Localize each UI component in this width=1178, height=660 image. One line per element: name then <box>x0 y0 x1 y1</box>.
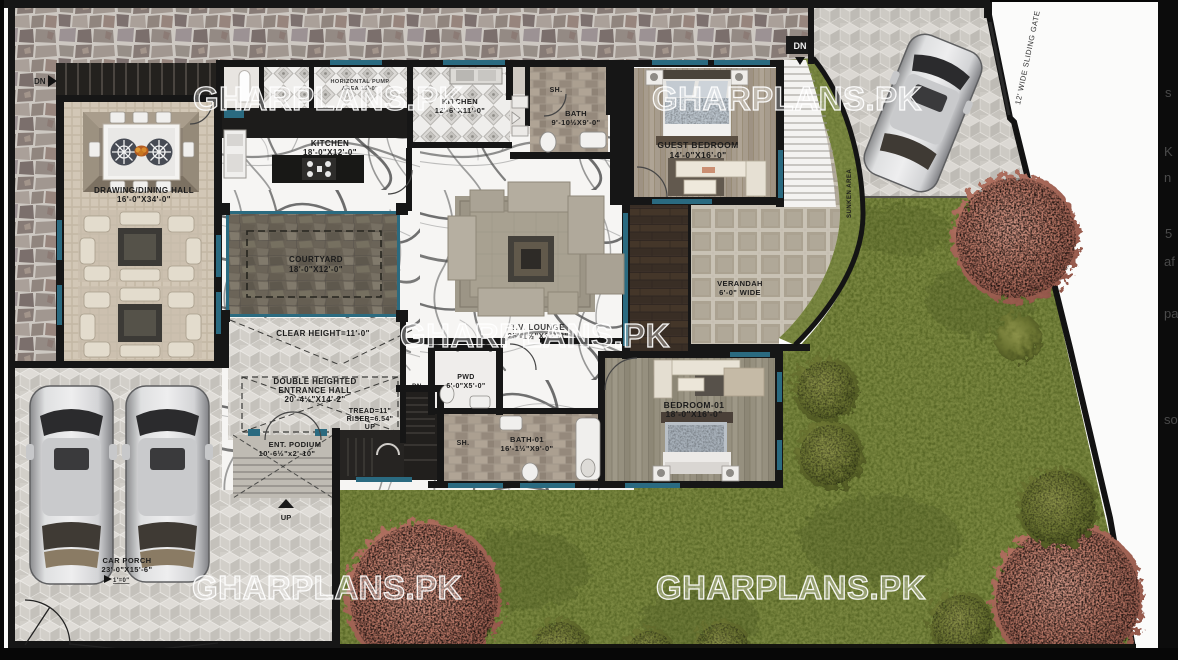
svg-text:18'-0"X16'-0": 18'-0"X16'-0" <box>666 409 723 419</box>
svg-text:PWD: PWD <box>457 374 475 381</box>
svg-text:GHARPLANS.PK: GHARPLANS.PK <box>656 569 926 606</box>
svg-text:RISER=6.54": RISER=6.54" <box>347 416 394 423</box>
svg-text:DN: DN <box>794 41 807 51</box>
svg-text:s: s <box>1165 85 1172 100</box>
svg-text:COURTYARD: COURTYARD <box>289 255 343 264</box>
svg-text:GHARPLANS.PK: GHARPLANS.PK <box>652 80 922 117</box>
svg-text:DN: DN <box>34 77 46 86</box>
svg-text:16'-1½"X9'-0": 16'-1½"X9'-0" <box>501 444 554 453</box>
svg-text:CAR PORCH: CAR PORCH <box>102 556 151 565</box>
svg-text:14'-0"X16'-0": 14'-0"X16'-0" <box>670 150 727 160</box>
svg-text:TREAD=11": TREAD=11" <box>349 408 392 415</box>
svg-text:10'-6½"x2'-10": 10'-6½"x2'-10" <box>259 449 316 458</box>
svg-text:SH.: SH. <box>550 87 563 94</box>
svg-text:BATH: BATH <box>565 109 587 118</box>
svg-text:DOUBLE HEIGHTED: DOUBLE HEIGHTED <box>273 377 356 386</box>
svg-text:ENT. PODIUM: ENT. PODIUM <box>269 440 322 449</box>
svg-text:so: so <box>1164 412 1178 427</box>
svg-text:18'-0"X12'-0": 18'-0"X12'-0" <box>289 265 343 274</box>
svg-text:af: af <box>1164 254 1175 269</box>
svg-text:UP: UP <box>281 513 291 522</box>
svg-text:UP: UP <box>365 424 376 431</box>
svg-text:ENTRANCE HALL: ENTRANCE HALL <box>278 386 351 395</box>
svg-text:DRAWING/DINING HALL: DRAWING/DINING HALL <box>94 186 194 195</box>
svg-text:1'=0": 1'=0" <box>113 578 129 584</box>
svg-text:18'-0"X12'-0": 18'-0"X12'-0" <box>303 148 357 157</box>
svg-text:VERANDAH: VERANDAH <box>717 279 763 288</box>
svg-text:6'-0" WIDE: 6'-0" WIDE <box>719 288 761 297</box>
svg-text:20'-4½"X14'-2": 20'-4½"X14'-2" <box>284 395 345 404</box>
svg-text:BATH-01: BATH-01 <box>510 435 544 444</box>
svg-text:9'-10½X9'-0": 9'-10½X9'-0" <box>551 118 600 127</box>
svg-text:n: n <box>1164 170 1171 185</box>
svg-text:SH.: SH. <box>457 440 470 447</box>
svg-text:16'-0"X34'-0": 16'-0"X34'-0" <box>117 195 171 204</box>
svg-text:KITCHEN: KITCHEN <box>311 139 349 148</box>
svg-text:GHARPLANS.PK: GHARPLANS.PK <box>192 569 462 606</box>
svg-text:CLEAR HEIGHT=11'-0": CLEAR HEIGHT=11'-0" <box>276 329 370 338</box>
svg-text:5: 5 <box>1165 226 1172 241</box>
svg-text:K: K <box>1164 144 1173 159</box>
svg-text:pa: pa <box>1164 306 1178 321</box>
svg-text:SUNKEN AREA: SUNKEN AREA <box>847 169 853 218</box>
svg-text:GHARPLANS.PK: GHARPLANS.PK <box>193 80 463 117</box>
svg-text:23'-0"X15'-6": 23'-0"X15'-6" <box>102 565 153 574</box>
svg-text:6'-0"X5'-0": 6'-0"X5'-0" <box>446 383 485 390</box>
svg-text:GHARPLANS.PK: GHARPLANS.PK <box>400 317 670 354</box>
svg-text:GUEST BEDROOM: GUEST BEDROOM <box>657 140 738 150</box>
